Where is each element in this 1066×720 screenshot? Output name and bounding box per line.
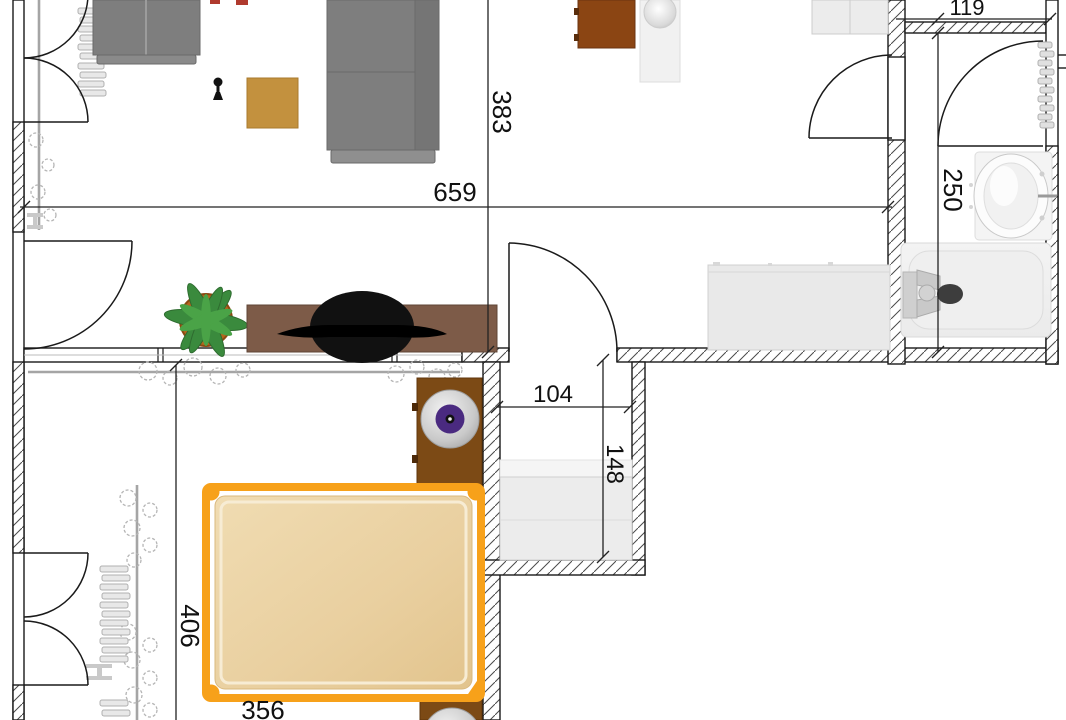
nightstand-with-speaker-top[interactable] — [412, 378, 482, 488]
floor-plan-canvas[interactable]: 659 383 119 250 104 148 406 356 — [0, 0, 1066, 720]
dim-label-659: 659 — [433, 177, 476, 207]
sphere-lamp — [644, 0, 676, 28]
dim-label-383: 383 — [487, 90, 517, 133]
dim-label-104: 104 — [533, 381, 573, 408]
coffee-table[interactable] — [247, 78, 298, 128]
door-french-bedroom-bottom — [24, 621, 88, 685]
tub-faucet-panel — [903, 272, 917, 318]
bed-handle-top-right — [468, 484, 485, 501]
door-french-bedroom-top — [24, 553, 88, 617]
floor-lamp[interactable] — [213, 78, 223, 101]
bathtub[interactable] — [901, 243, 1051, 337]
doorway-closet[interactable] — [509, 348, 617, 362]
white-cabinet-with-sphere[interactable] — [640, 0, 680, 82]
cropped-top-markers — [210, 0, 248, 5]
two-seat-sofa[interactable] — [93, 0, 200, 64]
door-entry-top-left — [24, 0, 88, 122]
wall-left-hatch-1[interactable] — [13, 122, 24, 232]
dim-label-356: 356 — [241, 695, 284, 720]
speaker-top — [421, 390, 479, 448]
door-bathroom-inner — [938, 41, 1043, 146]
tub-drain — [937, 284, 963, 304]
dim-label-148: 148 — [601, 444, 628, 484]
walls[interactable] — [13, 0, 1066, 720]
desk[interactable] — [574, 0, 635, 48]
wall-closet-bottom[interactable] — [483, 560, 645, 575]
washbasin[interactable] — [969, 152, 1057, 240]
sideboard-gray[interactable] — [708, 262, 890, 350]
wardrobe-top-right[interactable] — [812, 0, 888, 34]
window-sill-markers — [27, 213, 112, 680]
doorway-bathroom[interactable] — [888, 57, 905, 140]
bed-handle-top-left — [203, 484, 220, 501]
wall-left[interactable] — [13, 0, 24, 720]
wall-bedroom-right[interactable] — [483, 362, 500, 720]
dim-label-119: 119 — [949, 0, 984, 20]
dim-label-250: 250 — [938, 168, 968, 211]
large-sofa[interactable] — [327, 0, 439, 163]
door-living-left — [24, 241, 132, 349]
bed-handle-bottom-left — [203, 685, 220, 702]
wall-left-hatch-3[interactable] — [13, 685, 24, 720]
double-bed-selected[interactable] — [203, 484, 485, 702]
tv-stand[interactable] — [247, 291, 497, 363]
wall-bathroom-top[interactable] — [905, 22, 1046, 33]
door-closet — [509, 243, 617, 352]
door-bathroom-outer — [809, 55, 892, 138]
wall-left-hatch-2[interactable] — [13, 362, 24, 553]
dim-label-406: 406 — [175, 604, 205, 647]
wall-closet-right[interactable] — [632, 362, 645, 575]
